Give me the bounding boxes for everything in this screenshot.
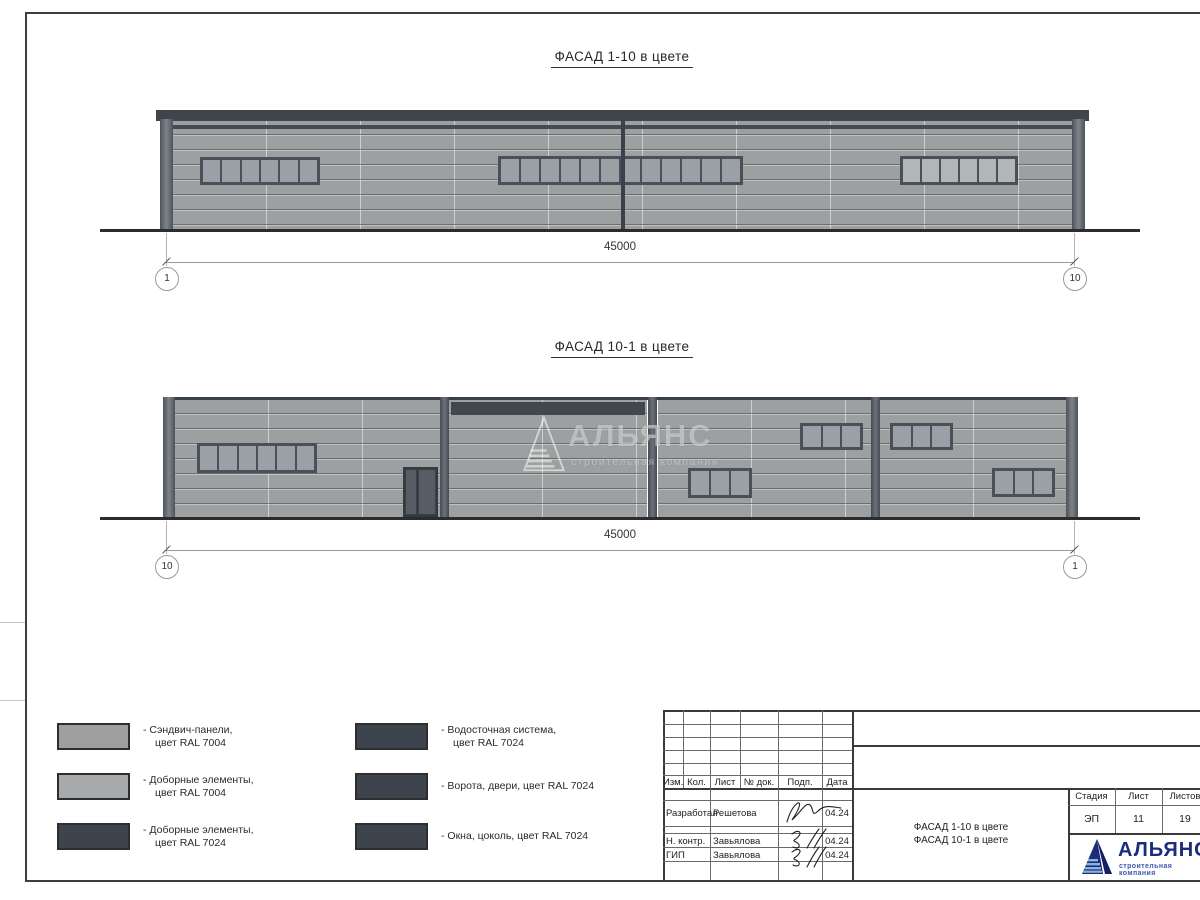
wall-panels [880, 400, 1066, 517]
tb-sheet-label: Лист [1115, 791, 1162, 802]
dimension-line [166, 262, 1074, 263]
titleblock-grid [710, 710, 711, 880]
titleblock-border [852, 745, 1200, 747]
legend-label: - Ворота, двери, цвет RAL 7024 [441, 780, 594, 793]
logo-pyramid-icon [1081, 838, 1113, 875]
tb-sheet-value: 11 [1115, 813, 1162, 825]
logo-name: АЛЬЯНС [1118, 839, 1200, 862]
legend-label: - Доборные элементы,цвет RAL 7004 [143, 774, 254, 800]
legend-label: - Сэндвич-панели,цвет RAL 7004 [143, 724, 232, 750]
tb-doc-title-line2: ФАСАД 10-1 в цвете [914, 834, 1008, 847]
titleblock-grid [663, 724, 852, 725]
margin-tick [0, 622, 25, 623]
tb-stage-value: ЭП [1068, 813, 1115, 825]
corner-column [1066, 397, 1078, 517]
legend-swatch [57, 723, 130, 750]
window-band [200, 157, 320, 185]
signature [781, 795, 847, 829]
legend-item: - Окна, цоколь, цвет RAL 7024 [355, 823, 655, 850]
signature [785, 843, 843, 871]
legend-item: - Доборные элементы,цвет RAL 7004 [57, 773, 357, 800]
facade1-drawing [160, 110, 1085, 229]
legend-label: - Водосточная система,цвет RAL 7024 [441, 724, 556, 750]
legend-item: - Сэндвич-панели,цвет RAL 7004 [57, 723, 357, 750]
entrance-door [403, 467, 438, 517]
legend-swatch [355, 823, 428, 850]
wall-panels [658, 400, 871, 517]
tb-header-izm: Изм. [663, 777, 683, 788]
titleblock-grid [1068, 805, 1200, 806]
drawing-sheet: ФАСАД 1-10 в цвете 45000 1 10 ФАСАД 10-1… [0, 0, 1200, 900]
titleblock-grid [663, 763, 852, 764]
legend-swatch [57, 773, 130, 800]
facade2-drawing [163, 397, 1078, 517]
tb-name: Завьялова [713, 850, 760, 861]
door-leaf [418, 469, 436, 515]
tb-doc-title: ФАСАД 1-10 в цвете ФАСАД 10-1 в цвете [854, 790, 1068, 878]
tb-role: Разработал [666, 808, 718, 819]
gate-lintel-band [451, 402, 645, 415]
facade1-title: ФАСАД 1-10 в цвете [462, 49, 782, 68]
axis-marker-left: 10 [155, 555, 179, 579]
dimension-value: 45000 [570, 241, 670, 253]
tb-stage-label: Стадия [1068, 791, 1115, 802]
legend-item: - Ворота, двери, цвет RAL 7024 [355, 773, 655, 800]
titleblock-grid [663, 750, 852, 751]
titleblock-grid [663, 775, 852, 776]
ground-line [100, 517, 1140, 520]
tb-doc-title-line1: ФАСАД 1-10 в цвете [914, 821, 1008, 834]
titleblock-border [663, 710, 665, 880]
legend-swatch [57, 823, 130, 850]
margin-tick [0, 700, 25, 701]
tb-header-kol: Кол. [683, 777, 710, 788]
tb-name: Завьялова [713, 836, 760, 847]
company-logo: АЛЬЯНС строительная компания [1068, 834, 1200, 879]
corner-column [1072, 119, 1085, 229]
legend-swatch [355, 723, 428, 750]
corner-column [163, 397, 175, 517]
window-band [197, 443, 317, 473]
window-band [900, 156, 1018, 185]
divider-column [440, 397, 449, 517]
titleblock-grid [778, 710, 779, 880]
axis-marker-right: 10 [1063, 267, 1087, 291]
window-band [688, 468, 752, 498]
window-band [992, 468, 1055, 497]
door-leaf [405, 469, 417, 515]
tb-sheets-value: 19 [1162, 813, 1200, 825]
window-band [800, 423, 863, 450]
legend-swatch [355, 773, 428, 800]
titleblock-border [663, 710, 1200, 712]
ground-line [100, 229, 1140, 232]
dimension-line [166, 550, 1074, 551]
downspout [621, 119, 625, 229]
dimension-value: 45000 [570, 529, 670, 541]
divider-column [871, 397, 880, 517]
facade2-title: ФАСАД 10-1 в цвете [462, 339, 782, 358]
tb-header-podp: Подп. [778, 777, 822, 788]
legend-item: - Водосточная система,цвет RAL 7024 [355, 723, 655, 750]
tb-sheets-label: Листов [1162, 791, 1200, 802]
tb-name: Решетова [713, 808, 757, 819]
corner-column [160, 119, 173, 229]
legend-label: - Окна, цоколь, цвет RAL 7024 [441, 830, 588, 843]
tb-role: Н. контр. [666, 836, 705, 847]
legend-label: - Доборные элементы,цвет RAL 7024 [143, 824, 254, 850]
divider-column [648, 397, 657, 517]
axis-marker-left: 1 [155, 267, 179, 291]
logo-subtitle: строительная компания [1119, 863, 1200, 877]
tb-header-data: Дата [822, 777, 852, 788]
legend-item: - Доборные элементы,цвет RAL 7024 [57, 823, 357, 850]
titleblock-grid [663, 737, 852, 738]
wall-panels [449, 400, 647, 517]
axis-marker-right: 1 [1063, 555, 1087, 579]
tb-header-doc: № док. [740, 777, 778, 788]
window-band [890, 423, 953, 450]
tb-header-list: Лист [710, 777, 740, 788]
tb-role: ГИП [666, 850, 685, 861]
